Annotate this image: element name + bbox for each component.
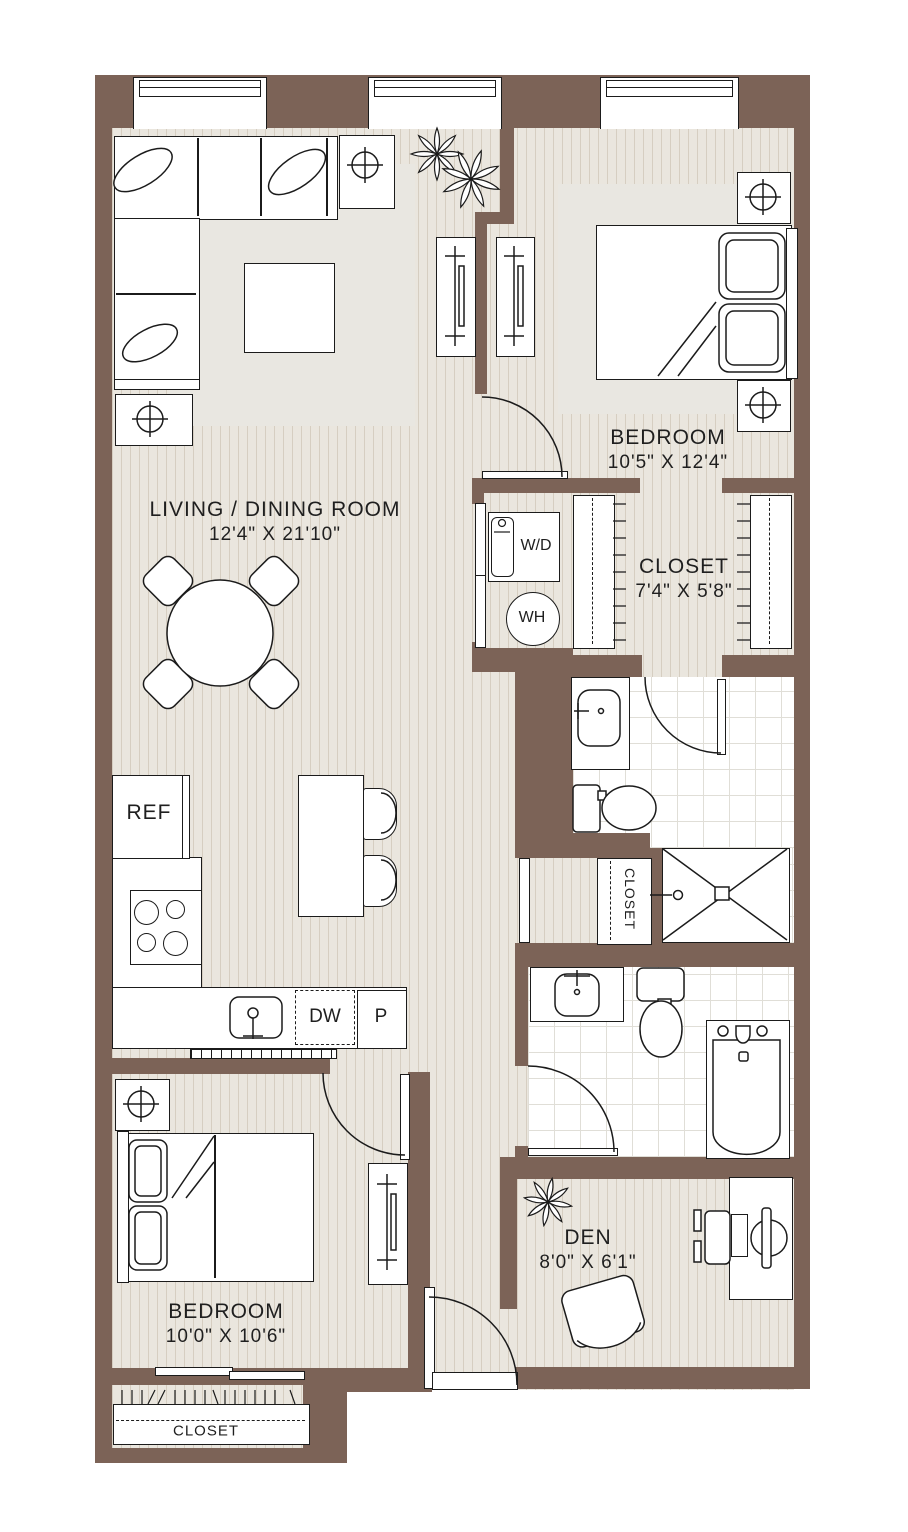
room-dims: 10'5" X 12'4" [608, 451, 728, 476]
wall [722, 655, 794, 677]
label-water-heater: WH [519, 609, 546, 627]
bar-stool [363, 855, 397, 907]
door-leaf [717, 679, 726, 755]
coffee-table [244, 263, 335, 353]
bifold-door [475, 575, 486, 648]
background [0, 1463, 908, 1532]
sliding-door [519, 858, 530, 943]
dresser [436, 237, 476, 357]
sliding-door [229, 1371, 305, 1380]
window-frame [374, 80, 496, 97]
closet-rod [592, 498, 593, 644]
sofa-seam [197, 138, 199, 216]
wall [482, 478, 640, 493]
room-label-bedroom1: BEDROOM 10'5" X 12'4" [608, 424, 728, 476]
wall [95, 75, 112, 1463]
wall [515, 943, 810, 967]
wall [515, 967, 528, 1066]
label-pantry: P [375, 1006, 388, 1028]
closet-rod [610, 861, 611, 940]
refrigerator-door [182, 775, 190, 859]
end-table [339, 135, 395, 209]
entry-threshold [432, 1372, 518, 1390]
nightstand [115, 1079, 170, 1131]
room-label-den: DEN 8'0" X 6'1" [539, 1224, 636, 1276]
room-dims: 10'0" X 10'6" [166, 1325, 286, 1350]
wall [722, 478, 797, 493]
floor-plan: LIVING / DINING ROOM 12'4" X 21'10" BEDR… [0, 0, 908, 1532]
burner [166, 900, 185, 919]
label-bedroom2-closet: CLOSET [173, 1423, 239, 1440]
window-frame [606, 80, 733, 97]
washer-icon [491, 517, 514, 577]
room-dims: 12'4" X 21'10" [149, 523, 400, 548]
room-name: BEDROOM [166, 1298, 286, 1325]
room-label-closet: CLOSET 7'4" X 5'8" [635, 553, 732, 605]
closet-rod [769, 498, 770, 644]
room-label-living: LIVING / DINING ROOM 12'4" X 21'10" [149, 496, 400, 548]
room-label-bedroom2: BEDROOM 10'0" X 10'6" [166, 1298, 286, 1350]
room-dims: 8'0" X 6'1" [539, 1251, 636, 1276]
burner [137, 933, 156, 952]
sofa-arm [114, 379, 200, 390]
bathtub [706, 1020, 790, 1159]
bar-stool [363, 788, 397, 840]
wall [475, 224, 487, 394]
monitor [731, 1214, 748, 1257]
closet-rod-unit [750, 495, 792, 649]
door-leaf [528, 1148, 618, 1156]
burner [163, 931, 188, 956]
window [133, 77, 267, 129]
bed [596, 225, 792, 380]
background [0, 0, 95, 1532]
wall [347, 1368, 432, 1392]
background [347, 1392, 432, 1463]
vanity [571, 677, 630, 770]
headboard [117, 1131, 129, 1283]
vanity [530, 967, 624, 1022]
dresser [368, 1163, 408, 1285]
burner [134, 900, 159, 925]
bed-seam [214, 1135, 216, 1278]
shower [662, 848, 790, 943]
label-dishwasher: DW [309, 1006, 341, 1028]
bed [126, 1133, 314, 1282]
sofa-seam [260, 138, 262, 216]
closet-rod [116, 1420, 305, 1421]
nightstand [737, 172, 791, 224]
end-table [115, 394, 193, 446]
sofa-seam [326, 138, 328, 216]
closet-rod-unit [573, 495, 615, 649]
room-name: BEDROOM [608, 424, 728, 451]
kitchen-island [298, 775, 364, 917]
bifold-door [475, 503, 486, 576]
background [432, 1390, 810, 1463]
wall [472, 478, 484, 504]
wall [515, 1367, 794, 1389]
background [0, 0, 908, 75]
headboard [786, 228, 798, 379]
wall [500, 1157, 517, 1309]
wall [95, 1058, 330, 1074]
wall [515, 1157, 794, 1179]
wall [472, 648, 518, 672]
background [810, 0, 908, 1532]
label-washer-dryer: W/D [520, 537, 551, 555]
door-leaf [482, 471, 568, 479]
radiator [190, 1049, 337, 1059]
sliding-door [155, 1367, 233, 1376]
sofa-section-left [114, 218, 200, 390]
window [600, 77, 739, 129]
room-name: DEN [539, 1224, 636, 1251]
dresser [496, 237, 535, 357]
room-name: CLOSET [635, 553, 732, 580]
sofa-section-top [114, 136, 338, 220]
sofa-seam [116, 293, 196, 295]
label-refrigerator: REF [127, 801, 172, 825]
wall [515, 833, 650, 858]
window-frame [139, 80, 261, 97]
wall [500, 128, 514, 220]
room-name: LIVING / DINING ROOM [149, 496, 400, 523]
nightstand [737, 380, 791, 432]
label-hall-closet: CLOSET [622, 868, 638, 930]
door-leaf [400, 1074, 410, 1160]
window [368, 77, 502, 129]
wall [475, 212, 514, 224]
wall [515, 648, 573, 848]
room-dims: 7'4" X 5'8" [635, 580, 732, 605]
